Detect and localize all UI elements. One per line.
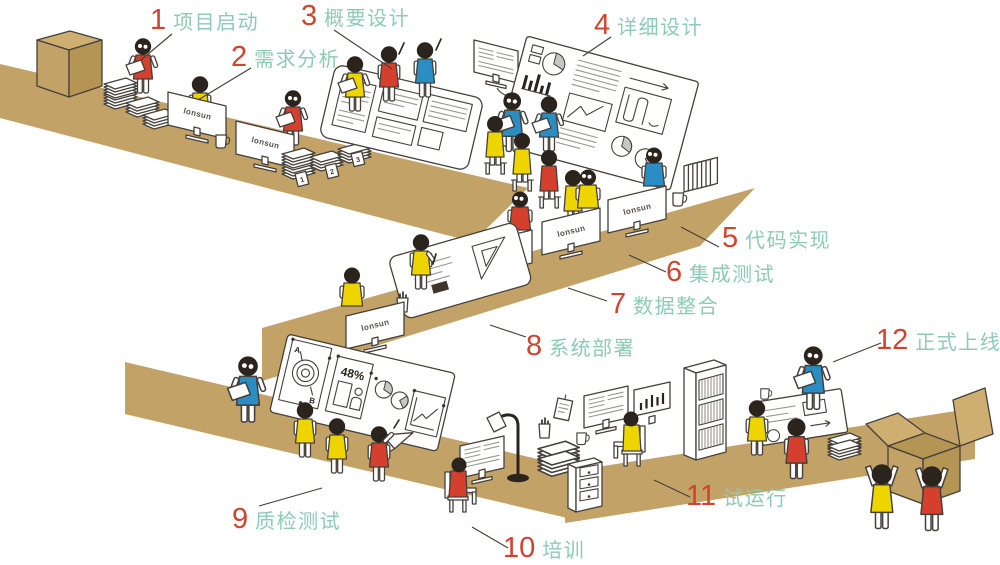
step-label-6: 6 集成测试 — [666, 258, 775, 287]
step-label-3: 3 概要设计 — [301, 2, 410, 31]
leader-line — [833, 343, 881, 362]
bookshelf — [684, 360, 726, 460]
monitor-chart — [634, 382, 670, 424]
coffee-cup — [577, 433, 589, 445]
step-text: 代码实现 — [745, 224, 831, 253]
step-label-2: 2 需求分析 — [231, 43, 340, 72]
step-label-5: 5 代码实现 — [722, 224, 831, 253]
leader-line — [490, 325, 526, 337]
step-label-8: 8 系统部署 — [526, 332, 635, 361]
step-number: 11 — [686, 482, 716, 511]
coffee-mug — [761, 389, 772, 399]
step-number: 8 — [526, 332, 542, 361]
leader-line — [568, 288, 607, 301]
step-text: 详细设计 — [617, 11, 703, 40]
step-number: 2 — [231, 43, 247, 72]
step-label-4: 4 详细设计 — [594, 11, 703, 40]
paper-stack — [828, 433, 861, 460]
stack-tag-1: 1 — [295, 171, 309, 186]
step-label-10: 10 培训 — [503, 534, 585, 563]
step-number: 6 — [666, 258, 682, 287]
step-number: 9 — [232, 505, 248, 534]
step-number: 10 — [503, 534, 535, 563]
monitor-front — [584, 386, 628, 434]
coffee-mug — [673, 193, 687, 206]
step-label-9: 9 质检测试 — [232, 505, 341, 534]
leader-line — [259, 488, 322, 506]
step-number: 4 — [594, 11, 610, 40]
workflow-illustration: lonsun lonsun 1 2 3 — [0, 0, 1000, 565]
step-number: 7 — [610, 290, 626, 319]
step-text: 集成测试 — [689, 258, 775, 287]
step-number: 1 — [150, 6, 166, 35]
pen-holder — [539, 418, 550, 438]
step-text: 质检测试 — [255, 505, 341, 534]
step-text: 系统部署 — [549, 332, 635, 361]
step-text: 数据整合 — [633, 290, 719, 319]
step-text: 正式上线 — [915, 326, 1000, 355]
drawer-cabinet — [568, 458, 602, 512]
step-label-12: 12 正式上线 — [876, 326, 1000, 355]
monitor-front — [474, 40, 518, 89]
step-text: 试运行 — [723, 482, 788, 511]
file-row — [684, 157, 717, 192]
stack-tag-2: 2 — [325, 163, 339, 178]
step-text: 需求分析 — [254, 43, 340, 72]
developer-yellow-left — [340, 268, 364, 307]
hanging-note — [554, 393, 574, 421]
stack-tag-3: 3 — [351, 151, 365, 166]
isometric-scene: lonsun lonsun 1 2 3 — [0, 0, 1000, 565]
step-text: 项目启动 — [173, 6, 259, 35]
step-label-11: 11 试运行 — [686, 482, 788, 511]
person-yellow-cheering — [866, 464, 898, 528]
step-label-1: 1 项目启动 — [150, 6, 259, 35]
step-number: 5 — [722, 224, 738, 253]
step-label-7: 7 数据整合 — [610, 290, 719, 319]
step-number: 12 — [876, 326, 908, 355]
step-text: 概要设计 — [324, 2, 410, 31]
cardboard-box-closed — [37, 31, 102, 97]
step-number: 3 — [301, 2, 317, 31]
step-text: 培训 — [542, 534, 585, 563]
